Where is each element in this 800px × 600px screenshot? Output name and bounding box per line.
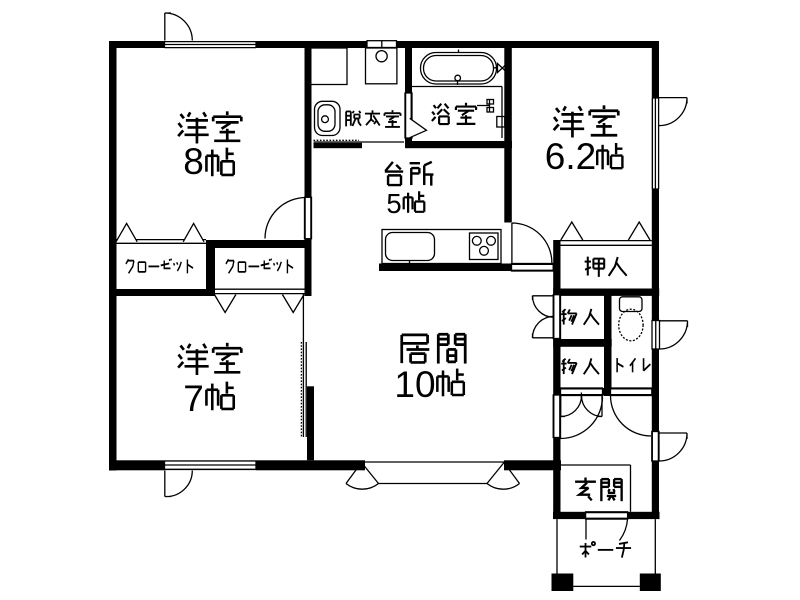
- svg-text:8: 8: [183, 141, 204, 182]
- svg-text:7: 7: [183, 378, 204, 419]
- svg-text:6.2: 6.2: [545, 136, 596, 177]
- svg-text:5: 5: [386, 188, 401, 219]
- svg-text:10: 10: [394, 364, 435, 405]
